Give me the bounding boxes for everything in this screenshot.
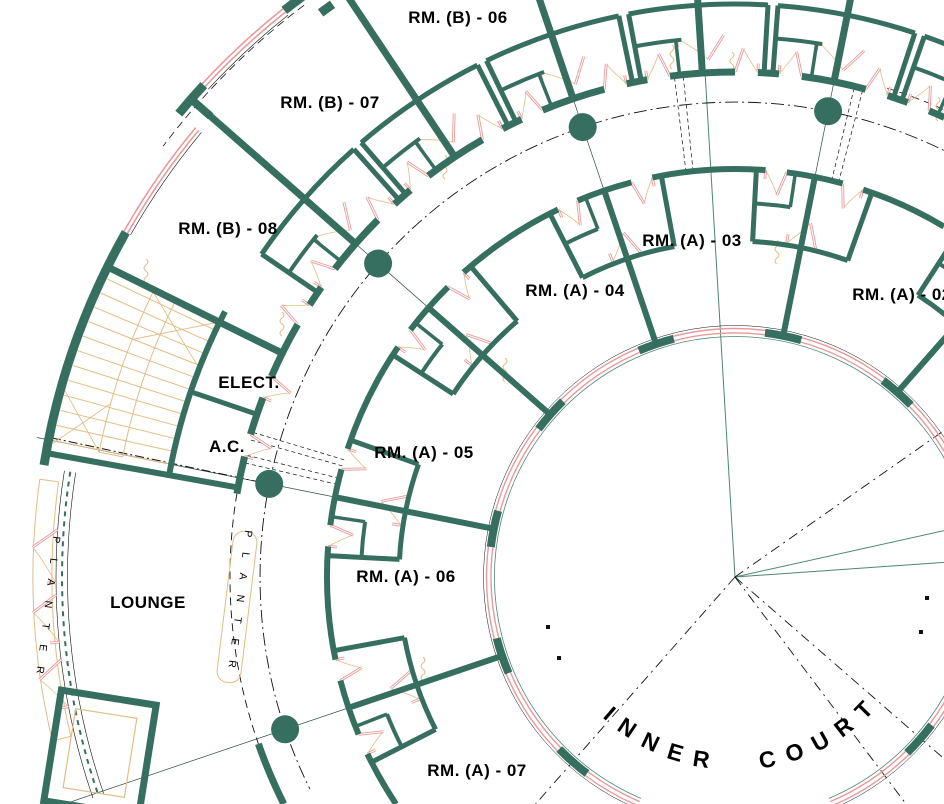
floor-plan-page: RM. (B) - 06 RM. (B) - 07 RM. (B) - 08 R… <box>0 0 944 804</box>
room-label-b07: RM. (B) - 07 <box>280 93 380 112</box>
room-label-a06: RM. (A) - 06 <box>356 567 456 586</box>
room-label-a05: RM. (A) - 05 <box>374 443 474 462</box>
room-label-a07: RM. (A) - 07 <box>427 761 527 780</box>
room-label-lounge: LOUNGE <box>110 593 186 612</box>
room-label-elect: ELECT. <box>218 373 280 392</box>
room-label-b06: RM. (B) - 06 <box>408 8 508 27</box>
room-label-a03: RM. (A) - 03 <box>642 231 742 250</box>
floor-plan-canvas: RM. (B) - 06 RM. (B) - 07 RM. (B) - 08 R… <box>0 0 944 804</box>
room-label-ac: A.C. <box>209 437 245 456</box>
room-label-a02: RM. (A) - 02 <box>852 285 944 304</box>
room-label-b08: RM. (B) - 08 <box>178 219 278 238</box>
room-label-a04: RM. (A) - 04 <box>525 281 625 300</box>
